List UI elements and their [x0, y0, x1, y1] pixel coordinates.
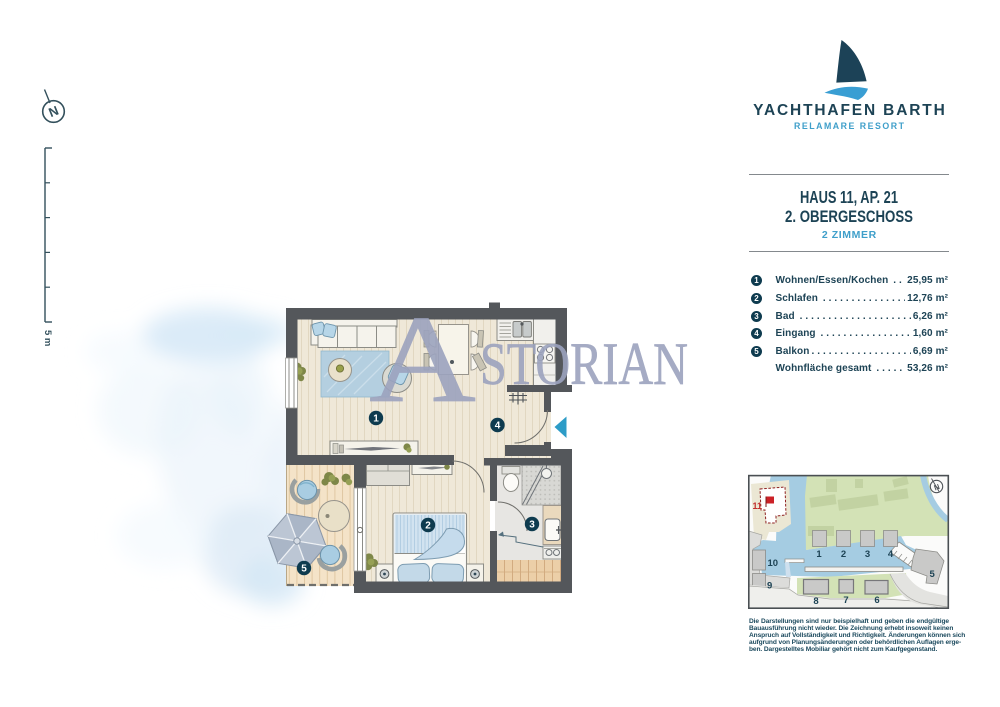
svg-text:7: 7 — [843, 595, 848, 606]
svg-text:11: 11 — [753, 501, 763, 511]
svg-text:6: 6 — [874, 595, 879, 606]
svg-text:10: 10 — [768, 558, 779, 569]
svg-text:5: 5 — [930, 569, 936, 580]
svg-text:3: 3 — [865, 549, 870, 560]
svg-text:8: 8 — [813, 596, 818, 607]
svg-text:1: 1 — [816, 549, 822, 560]
svg-text:2: 2 — [841, 549, 846, 560]
svg-text:9: 9 — [767, 581, 772, 592]
svg-text:4: 4 — [888, 549, 894, 560]
